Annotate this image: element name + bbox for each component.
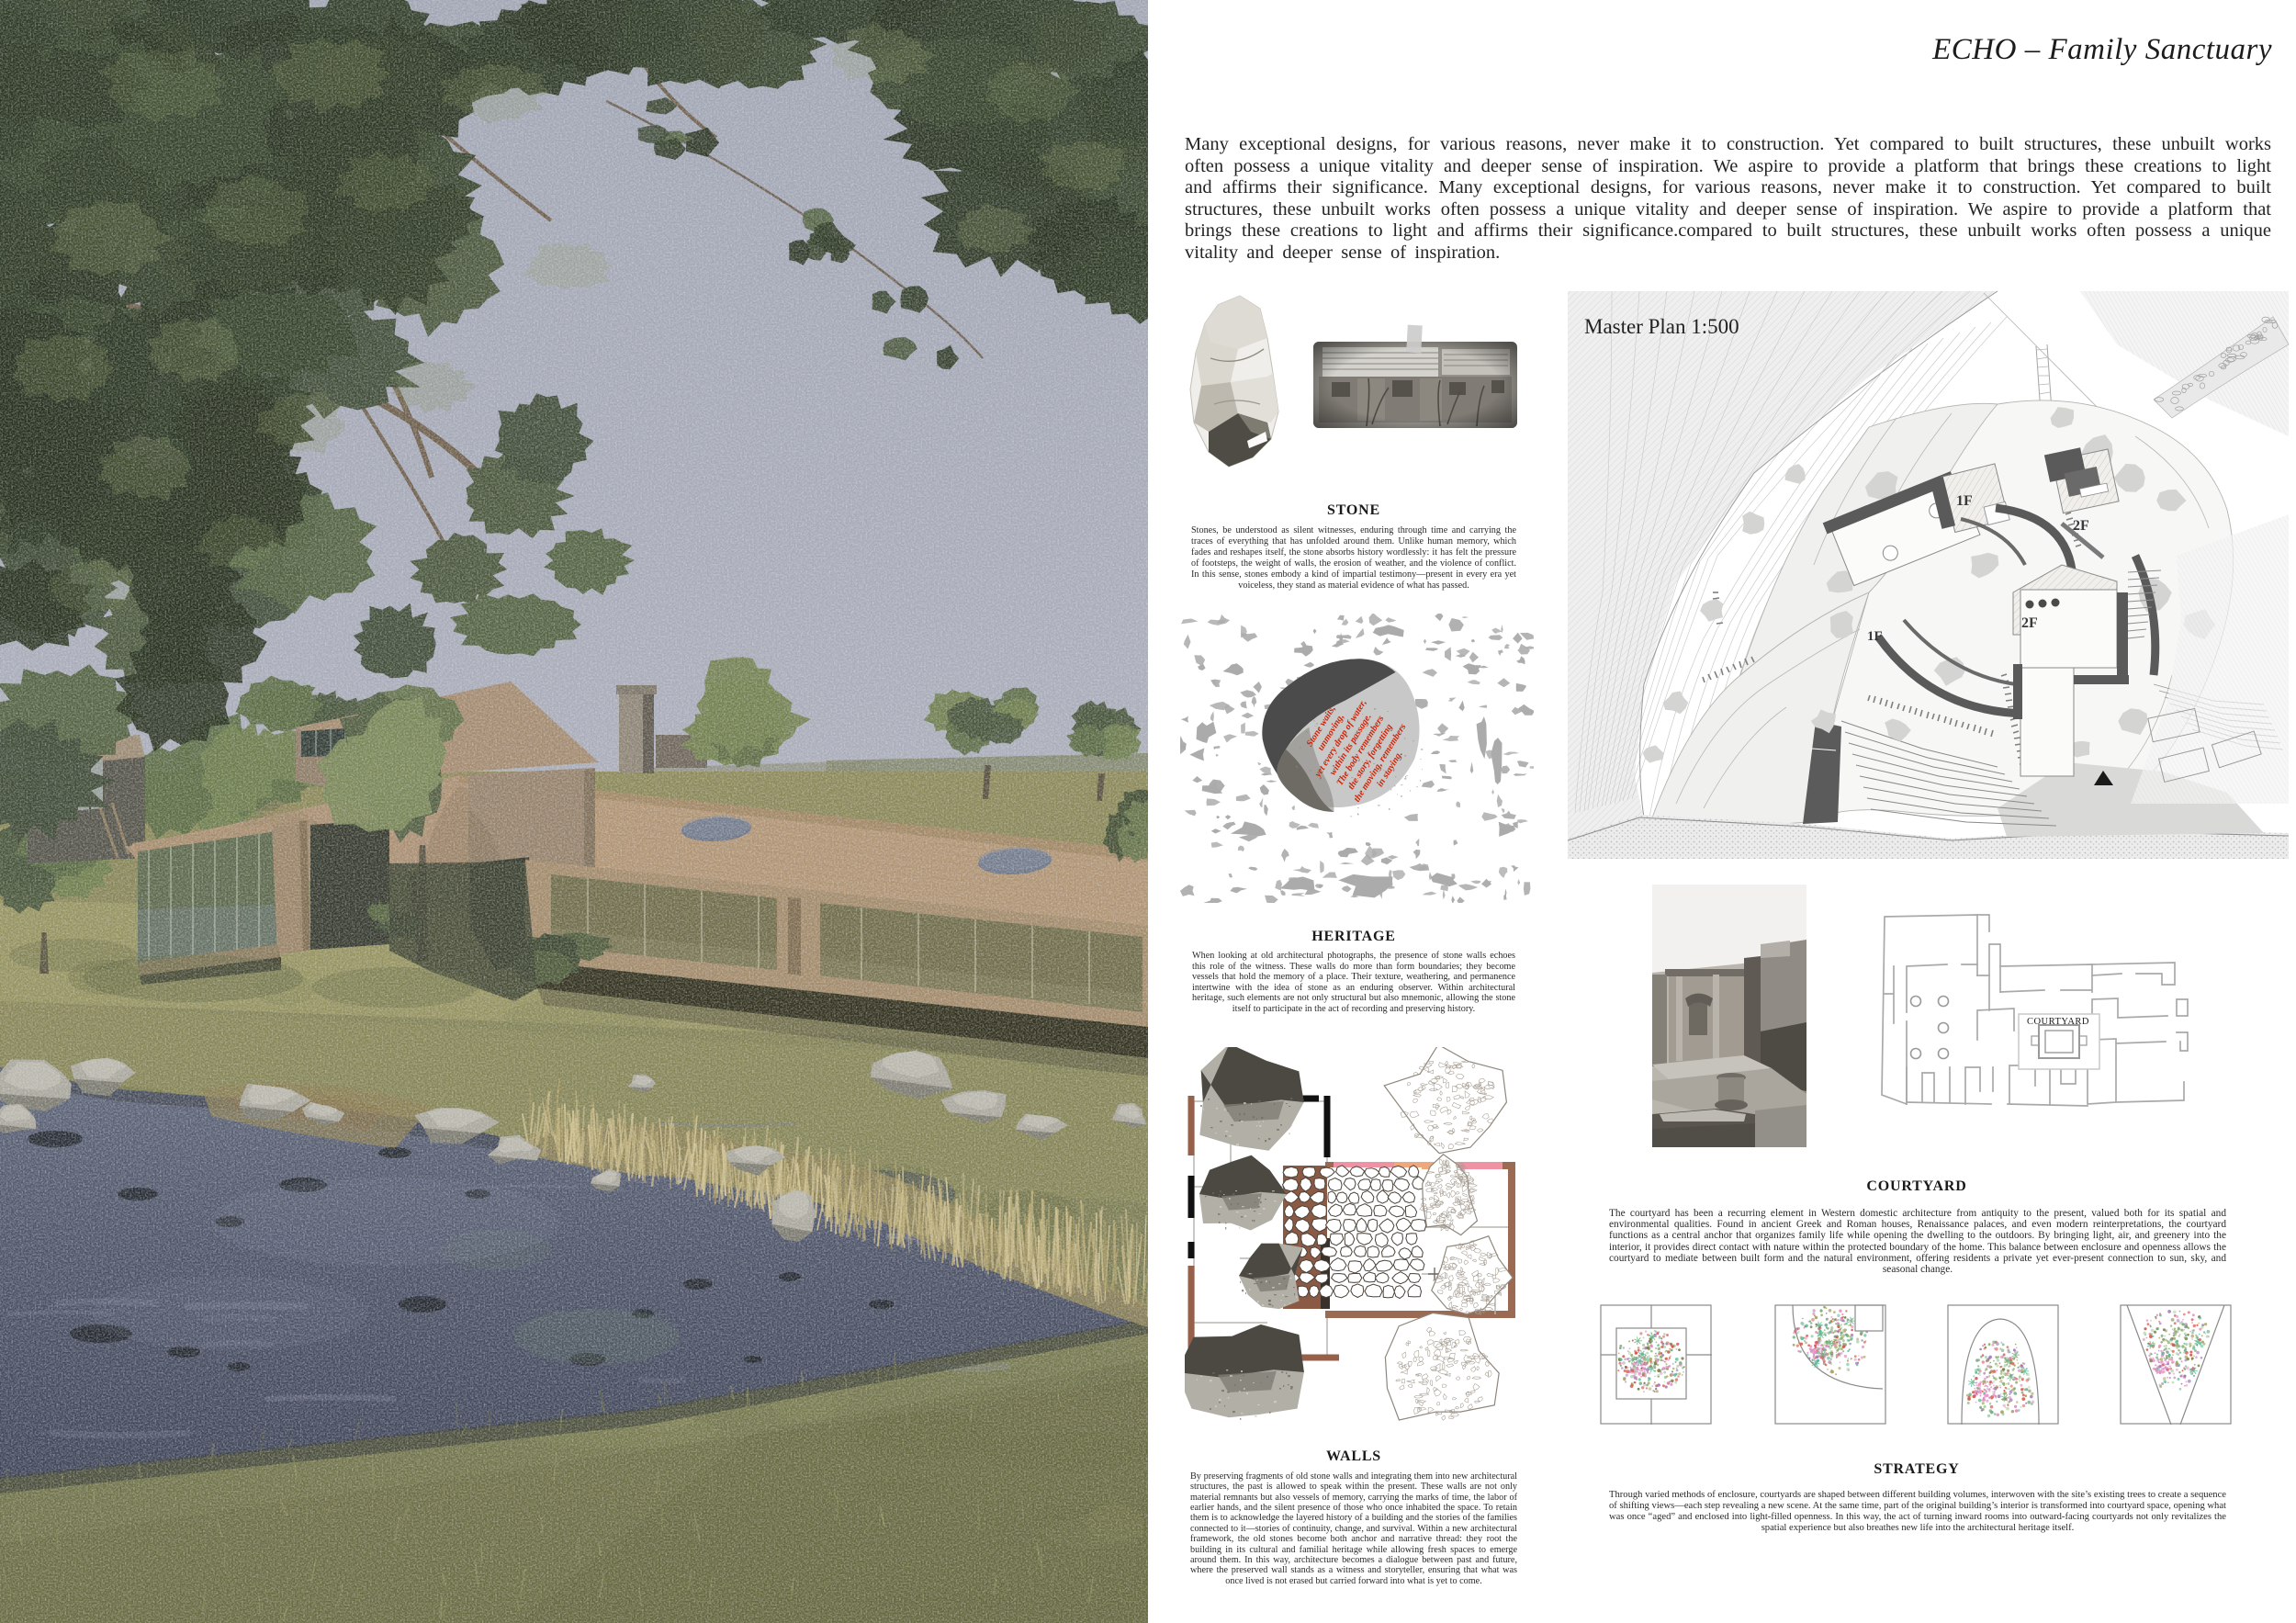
svg-text:1F: 1F [1867,629,1883,644]
svg-text:1F: 1F [1956,493,1973,509]
svg-text:2F: 2F [2021,615,2038,631]
svg-text:COURTYARD: COURTYARD [2027,1017,2089,1027]
svg-text:Master Plan 1:500: Master Plan 1:500 [1584,315,1739,338]
svg-text:2F: 2F [2073,518,2089,534]
